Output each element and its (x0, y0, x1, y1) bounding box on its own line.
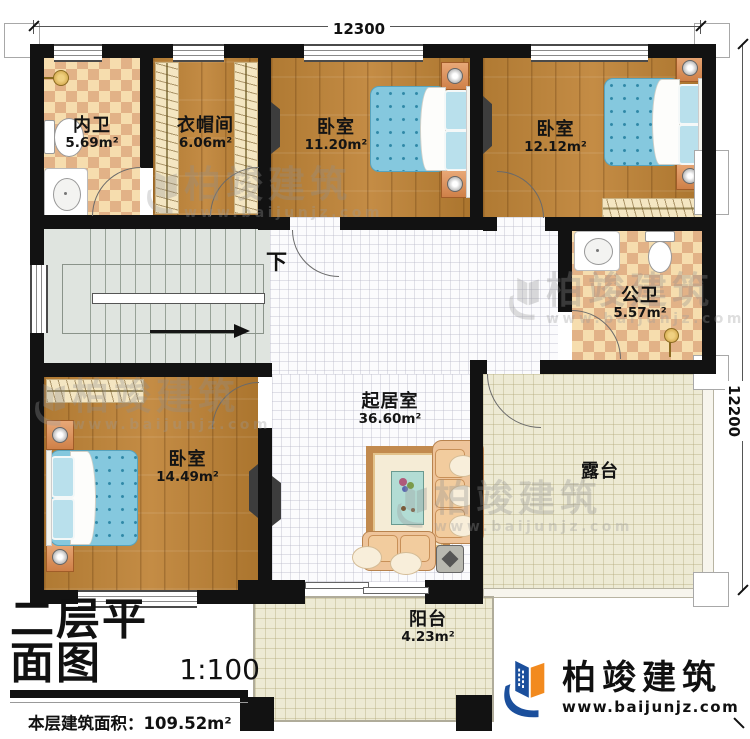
wall-above-stairs (44, 215, 270, 229)
wall-terrace-top (470, 360, 487, 374)
shower-head-icon (664, 328, 679, 343)
wall-living-terrace (470, 374, 483, 592)
stair-handrail (92, 293, 265, 304)
wall-bedroomleft-living (258, 428, 272, 592)
bed-sheet (420, 87, 446, 171)
terrace-bottom-rail (483, 588, 714, 598)
dimension-tick (737, 584, 748, 595)
nightstand (441, 170, 469, 198)
shower-hose (669, 341, 671, 357)
dimension-right-label: 12200 (725, 381, 743, 441)
tv (249, 464, 258, 518)
balcony-slider-door (305, 582, 369, 589)
shower-head-icon (53, 70, 69, 86)
wall-below-stairs (30, 363, 272, 377)
logo-brand-text: 柏竣建筑 (562, 661, 739, 695)
wall-innerbath-cloakroom (140, 58, 153, 168)
coffee-table (391, 471, 424, 525)
wall-bedroom-top-bottom (340, 217, 470, 230)
wall-bedroom-bedroom (470, 58, 483, 230)
terrace-right-rail (702, 374, 714, 594)
side-table (436, 545, 464, 573)
dimension-tick (737, 38, 748, 49)
ottoman (390, 552, 422, 575)
stair-direction-line (150, 330, 236, 333)
floor-area-text: 本层建筑面积：109.52m² (28, 711, 260, 737)
window (30, 265, 48, 333)
tv (272, 476, 281, 526)
nightstand (46, 420, 74, 450)
window (531, 44, 648, 62)
wall-right (702, 44, 716, 374)
inner-bath-sink (44, 168, 88, 220)
floor-plan: 柏竣建筑www.baijunjz.com 柏竣建筑www.baijunjz.co… (0, 0, 750, 739)
wardrobe-rack (46, 379, 144, 403)
window (173, 44, 224, 62)
nightstand (441, 62, 469, 90)
balcony-pillar (425, 580, 483, 604)
bed-pillow (51, 456, 75, 498)
wall-publicbath-left (558, 231, 572, 312)
balcony-slider-door (363, 587, 429, 594)
dimension-top-label: 12300 (328, 20, 390, 38)
wall-bedroom-right-bottom (483, 217, 497, 231)
wall-terrace-top (540, 360, 716, 374)
bed-headboard (46, 450, 52, 546)
toilet-bowl (648, 241, 672, 273)
title-underline (10, 690, 248, 698)
wall-cloakroom-bedroom (258, 58, 271, 230)
wall-bedroom-right-bottom (545, 217, 702, 231)
public-bath-sink (574, 231, 620, 271)
company-logo: 柏竣建筑 www.baijunjz.com (492, 652, 739, 724)
window (54, 44, 102, 62)
wardrobe-rack-left (155, 62, 179, 214)
window (304, 44, 423, 62)
exterior-column-box (693, 572, 729, 607)
ottoman (352, 546, 382, 569)
plan-title: 二层平面图 (10, 598, 175, 686)
title-block: 二层平面图 1:100 本层建筑面积：109.52m² 层高：3.6m (10, 598, 260, 739)
dimension-line-right (742, 44, 743, 590)
tv (271, 102, 280, 154)
bed-pillow (51, 498, 75, 540)
stairs-down-label: 下 (266, 246, 287, 276)
logo-url-text: www.baijunjz.com (562, 698, 739, 716)
title-thinline (10, 702, 248, 703)
tv (483, 96, 492, 154)
nightstand (46, 542, 74, 572)
brand-logo-icon (492, 652, 554, 724)
plan-scale: 1:100 (179, 655, 260, 686)
wall-bedroom-top-bottom (271, 217, 290, 230)
toilet-bowl (54, 118, 84, 157)
balcony-pillar (456, 695, 492, 731)
drying-rack (602, 198, 704, 219)
bed-sheet (652, 79, 680, 165)
